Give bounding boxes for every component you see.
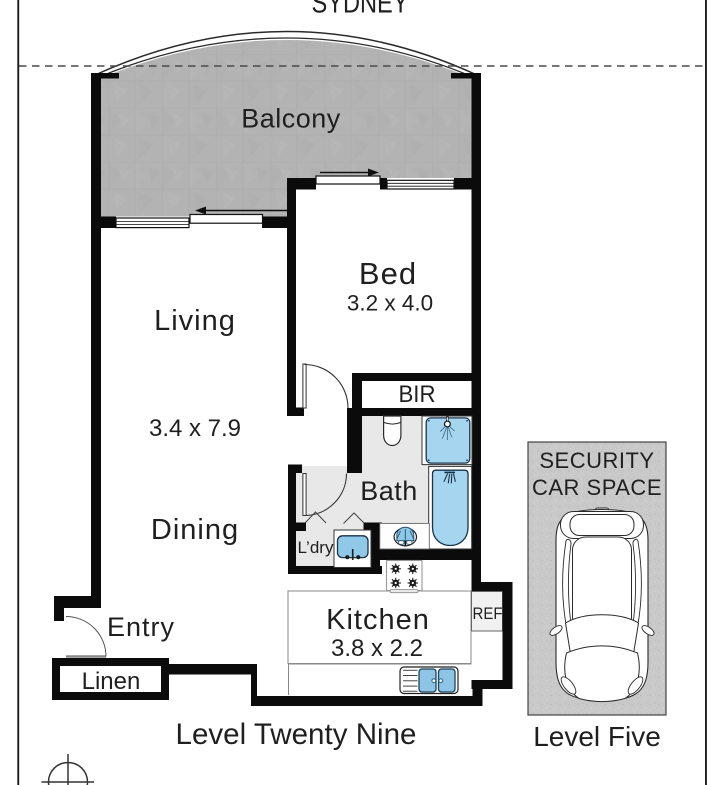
svg-text:Bath: Bath [360,476,418,506]
svg-text:3.8 x 2.2: 3.8 x 2.2 [331,635,423,662]
svg-text:CAR SPACE: CAR SPACE [532,475,662,500]
svg-text:Bed: Bed [359,256,417,291]
svg-text:3.4 x 7.9: 3.4 x 7.9 [149,415,241,442]
svg-text:BIR: BIR [399,381,436,408]
svg-text:Level Twenty Nine: Level Twenty Nine [176,718,417,751]
svg-text:SYDNEY: SYDNEY [312,0,409,20]
svg-text:Level Five: Level Five [533,721,661,752]
svg-text:Entry: Entry [107,612,175,642]
svg-text:L’dry: L’dry [298,538,334,557]
svg-text:REF: REF [473,604,503,623]
svg-text:3.2 x 4.0: 3.2 x 4.0 [347,291,433,316]
svg-text:SECURITY: SECURITY [539,448,654,473]
svg-text:Kitchen: Kitchen [326,604,430,636]
svg-text:Living: Living [154,305,236,337]
svg-text:Dining: Dining [151,514,239,546]
svg-text:Linen: Linen [82,668,141,695]
svg-text:Balcony: Balcony [241,104,341,134]
